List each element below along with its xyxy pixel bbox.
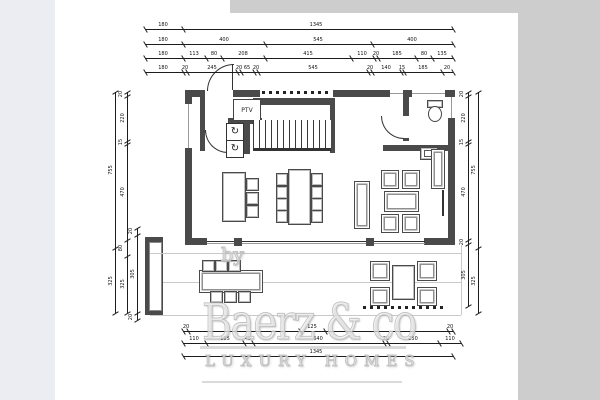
patio-seat [370, 261, 390, 281]
dimension-label: 415 [303, 51, 313, 57]
dimension-label: 113 [189, 51, 199, 57]
dimension-label: 185 [418, 65, 428, 71]
wall-hall [200, 97, 205, 151]
patio-seat [417, 287, 437, 306]
dimension-label: 1345 [310, 22, 323, 28]
tall-cabinet [431, 149, 445, 189]
dimension-line [145, 58, 453, 59]
dimension-label: 20 [373, 51, 379, 57]
dimension-label: 400 [407, 37, 417, 43]
railing-dot [290, 91, 293, 94]
floor-plan-screenshot: PTV ↻ ↻ [0, 0, 600, 400]
lounge-seat [402, 214, 420, 233]
dimension-label: 470 [461, 187, 467, 197]
dimension-label: 20 [182, 65, 188, 71]
ptv-room: PTV [233, 99, 261, 121]
dimension-label: 110 [189, 336, 199, 342]
dimension-line [468, 92, 469, 306]
railing-dot [297, 91, 300, 94]
watermark-by: by [221, 246, 244, 265]
tv-on-wall [442, 190, 444, 216]
dimension-tick [134, 318, 140, 323]
dimension-label: 325 [120, 279, 126, 289]
dimension-label: 180 [158, 37, 168, 43]
dimension-label: 80 [421, 51, 427, 57]
patio-seat [417, 261, 437, 281]
washer-rotate-icon: ↻ [231, 127, 239, 137]
dimension-label: 20 [236, 65, 242, 71]
dimension-line [145, 72, 453, 73]
island-stool [246, 192, 259, 205]
coffee-table [384, 191, 419, 212]
dimension-label: 180 [158, 51, 168, 57]
terrace-dot [426, 306, 429, 309]
bath-door-arc [381, 116, 404, 139]
dimension-line [145, 44, 453, 45]
dimension-label: 305 [461, 270, 467, 280]
dimension-label: 400 [219, 37, 229, 43]
dimension-line [127, 92, 128, 313]
dining-table [288, 169, 311, 225]
dimension-label: 20 [253, 65, 259, 71]
railing-dot [304, 91, 307, 94]
dimension-label: 140 [381, 65, 391, 71]
dimension-label: 545 [308, 65, 318, 71]
terrace-dot [440, 306, 443, 309]
outdoor-chair [202, 260, 215, 272]
dimension-label: 110 [445, 336, 455, 342]
dimension-line [478, 92, 479, 313]
kitchen-island [222, 172, 246, 222]
dimension-label: 20 [459, 91, 465, 97]
dimension-label: 220 [461, 113, 467, 123]
terrace-dot [433, 306, 436, 309]
dining-chair [276, 210, 288, 223]
sideboard [354, 181, 370, 229]
window-right-glass-line [451, 97, 452, 118]
dimension-label: 208 [238, 51, 248, 57]
watermark-tagline: LUXURY HOMES [205, 354, 422, 369]
dimension-label: 15 [459, 139, 465, 145]
entrance-door-leaf [232, 64, 233, 90]
dimension-label: 80 [211, 51, 217, 57]
dimension-label: 20 [459, 239, 465, 245]
ptv-label: PTV [241, 107, 252, 114]
railing-dot [311, 91, 314, 94]
lounge-seat [402, 170, 420, 189]
railing-dot [325, 91, 328, 94]
dimension-tick [475, 311, 481, 316]
dimension-label: 15 [118, 139, 124, 145]
dimension-label: 470 [120, 187, 126, 197]
dimension-label: 20 [444, 65, 450, 71]
window-top-bath-glass-line [412, 93, 445, 94]
dryer-box: ↻ [226, 140, 244, 158]
dimension-line [137, 228, 138, 320]
dimension-label: 755 [471, 165, 477, 175]
island-stool [246, 205, 259, 218]
washer-box: ↻ [226, 123, 244, 141]
railing-dot [283, 91, 286, 94]
lounge-seat [381, 214, 399, 233]
dimension-label: 135 [437, 51, 447, 57]
dimension-label: 20 [128, 228, 134, 234]
dimension-label: 65 [244, 65, 250, 71]
dimension-label: 245 [207, 65, 217, 71]
dimension-label: 305 [130, 269, 136, 279]
dimension-label: 185 [392, 51, 402, 57]
stairs-treads [253, 120, 331, 148]
railing-dot [262, 91, 265, 94]
wall-stair-header [253, 98, 333, 105]
dimension-label: 20 [183, 324, 189, 330]
dimension-label: 110 [357, 51, 367, 57]
island-stool [246, 178, 259, 191]
railing-dot [318, 91, 321, 94]
dining-chair [311, 210, 323, 223]
dimension-label: 180 [158, 65, 168, 71]
dimension-tick [112, 311, 118, 316]
watermark-rule-lower [202, 381, 402, 383]
dryer-rotate-icon: ↻ [231, 144, 239, 154]
dimension-label: 80 [118, 245, 124, 251]
railing-dot [276, 91, 279, 94]
dimension-line [115, 92, 116, 313]
wall-bottom-left [185, 238, 207, 245]
dimension-label: 15 [399, 65, 405, 71]
stairs-bottom-edge [253, 148, 331, 151]
dimension-label: 325 [471, 276, 477, 286]
dimension-label: 755 [108, 165, 114, 175]
toilet-bowl [428, 106, 442, 122]
watermark-brand: Baerz & co [202, 297, 416, 347]
terrace-dot [419, 306, 422, 309]
dimension-label: 220 [120, 113, 126, 123]
dimension-label: 325 [108, 276, 114, 286]
dimension-label: 20 [447, 324, 453, 330]
railing-dot [269, 91, 272, 94]
dimension-label: 545 [313, 37, 323, 43]
outdoor-table [199, 270, 263, 293]
window-top-small-glass-line [390, 93, 403, 94]
lounge-seat [381, 170, 399, 189]
wall-bottom-right [424, 238, 455, 245]
dimension-label: 180 [158, 22, 168, 28]
glass-mullion-right [366, 238, 374, 246]
dimension-label: 20 [118, 91, 124, 97]
dining-chair [311, 173, 323, 186]
dimension-tick [465, 304, 471, 309]
terrace-edge-right [461, 245, 462, 315]
dimension-line [145, 29, 453, 30]
wall-top-left-b [233, 90, 260, 97]
window-left-glass-line [188, 104, 189, 148]
dining-chair [276, 173, 288, 186]
hall-door-arc [205, 130, 228, 153]
terrace-line-top [150, 253, 461, 254]
dimension-label: 20 [367, 65, 373, 71]
dimension-label: 20 [128, 314, 134, 320]
